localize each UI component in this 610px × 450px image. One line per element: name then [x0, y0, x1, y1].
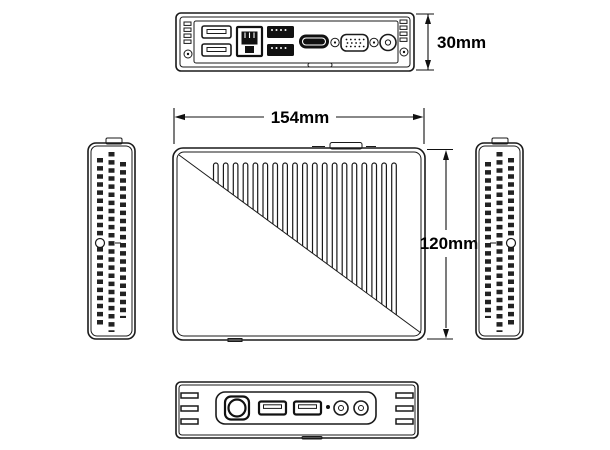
- right-side-screw-hole-icon: [507, 239, 516, 248]
- front-usb-port-2-icon: [294, 402, 321, 415]
- rear-vga-port-icon: [331, 35, 378, 52]
- heatsink-fin: [362, 163, 367, 331]
- heatsink-fin: [342, 163, 347, 331]
- rear-bottom-tab: [308, 63, 332, 67]
- heatsink-fin: [243, 163, 248, 331]
- heatsink-fin: [263, 163, 268, 331]
- heatsink-fin: [214, 163, 219, 331]
- rear-usb-ports-right-icon: [267, 26, 294, 56]
- heatsink-fin: [352, 163, 357, 331]
- heatsink-fin: [293, 163, 298, 331]
- height-dimension-label: 120mm: [420, 234, 479, 253]
- right-side-view: [476, 138, 523, 339]
- front-audio-jack-2-icon: [354, 401, 368, 415]
- rear-usb-ports-left-icon: [202, 26, 231, 56]
- rear-inner-case: [180, 17, 410, 67]
- rear-right-screw-icon: [400, 48, 408, 56]
- heatsink-fin: [253, 163, 258, 331]
- front-led-indicator-icon: [326, 405, 330, 409]
- front-usb-port-1-icon: [259, 402, 286, 415]
- heatsink-fin: [372, 163, 377, 331]
- front-power-connector-icon: [225, 397, 249, 420]
- width-dimension-label: 154mm: [271, 108, 330, 127]
- depth-dimension: 30mm: [416, 14, 486, 70]
- rear-hdmi-port-icon: [299, 35, 329, 49]
- front-right-vent-slats: [396, 393, 413, 424]
- heatsink-fin: [273, 163, 278, 331]
- left-side-screw-hole-icon: [96, 239, 105, 248]
- heatsink-fin: [313, 163, 318, 331]
- depth-dimension-label: 30mm: [437, 33, 486, 52]
- mini-pc-dimension-diagram: 30mm 154mm 120mm: [0, 0, 610, 450]
- left-side-view: [88, 138, 135, 339]
- front-outer-case: [176, 382, 418, 438]
- heatsink-fin: [322, 163, 327, 331]
- rear-panel-view: [176, 13, 414, 71]
- height-dimension: 120mm: [420, 150, 479, 340]
- main-outer-case: [173, 148, 425, 340]
- front-panel-view: [176, 382, 418, 439]
- front-left-vent-slats: [181, 393, 198, 424]
- rear-left-screw-icon: [184, 50, 192, 58]
- width-dimension: 154mm: [174, 108, 424, 144]
- heatsink-fin: [233, 163, 238, 331]
- heatsink-fin: [283, 163, 288, 331]
- diagram-svg: 30mm 154mm 120mm: [0, 0, 610, 450]
- heatsink-fin: [332, 163, 337, 331]
- main-top-face-view: [173, 143, 425, 342]
- front-audio-jack-1-icon: [334, 401, 348, 415]
- rear-ethernet-port-icon: [237, 27, 262, 56]
- rear-left-vent-slats: [184, 22, 191, 43]
- rear-power-jack-icon: [380, 35, 396, 51]
- rear-right-vent-slats: [400, 20, 407, 41]
- heatsink-fin: [392, 163, 397, 331]
